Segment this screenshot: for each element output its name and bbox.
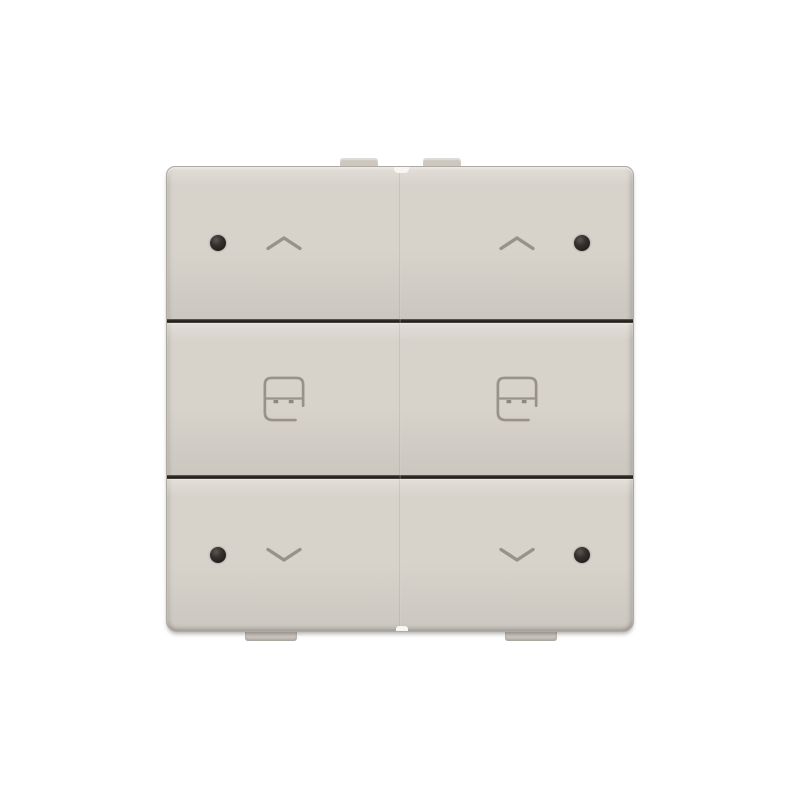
led-indicator	[210, 547, 226, 563]
chevron-down-icon	[264, 546, 304, 564]
button-up-right[interactable]	[400, 167, 633, 319]
led-indicator	[574, 547, 590, 563]
led-indicator	[210, 235, 226, 251]
chevron-down-icon	[497, 546, 537, 564]
rocker-row-preset	[167, 323, 633, 475]
button-down-left[interactable]	[167, 479, 400, 631]
release-notch-bottom	[396, 626, 408, 632]
switch-body	[166, 166, 634, 632]
led-indicator	[574, 235, 590, 251]
wall-switch-device	[166, 166, 634, 632]
chevron-up-icon	[497, 234, 537, 252]
product-photo-stage	[0, 0, 800, 800]
sunblind-icon	[262, 376, 306, 422]
button-preset-left[interactable]	[167, 323, 400, 475]
button-preset-right[interactable]	[400, 323, 633, 475]
button-up-left[interactable]	[167, 167, 400, 319]
button-down-right[interactable]	[400, 479, 633, 631]
rocker-row-up	[167, 167, 633, 319]
chevron-up-icon	[264, 234, 304, 252]
rocker-row-down	[167, 479, 633, 631]
release-nub-top	[394, 166, 409, 173]
sunblind-icon	[495, 376, 539, 422]
